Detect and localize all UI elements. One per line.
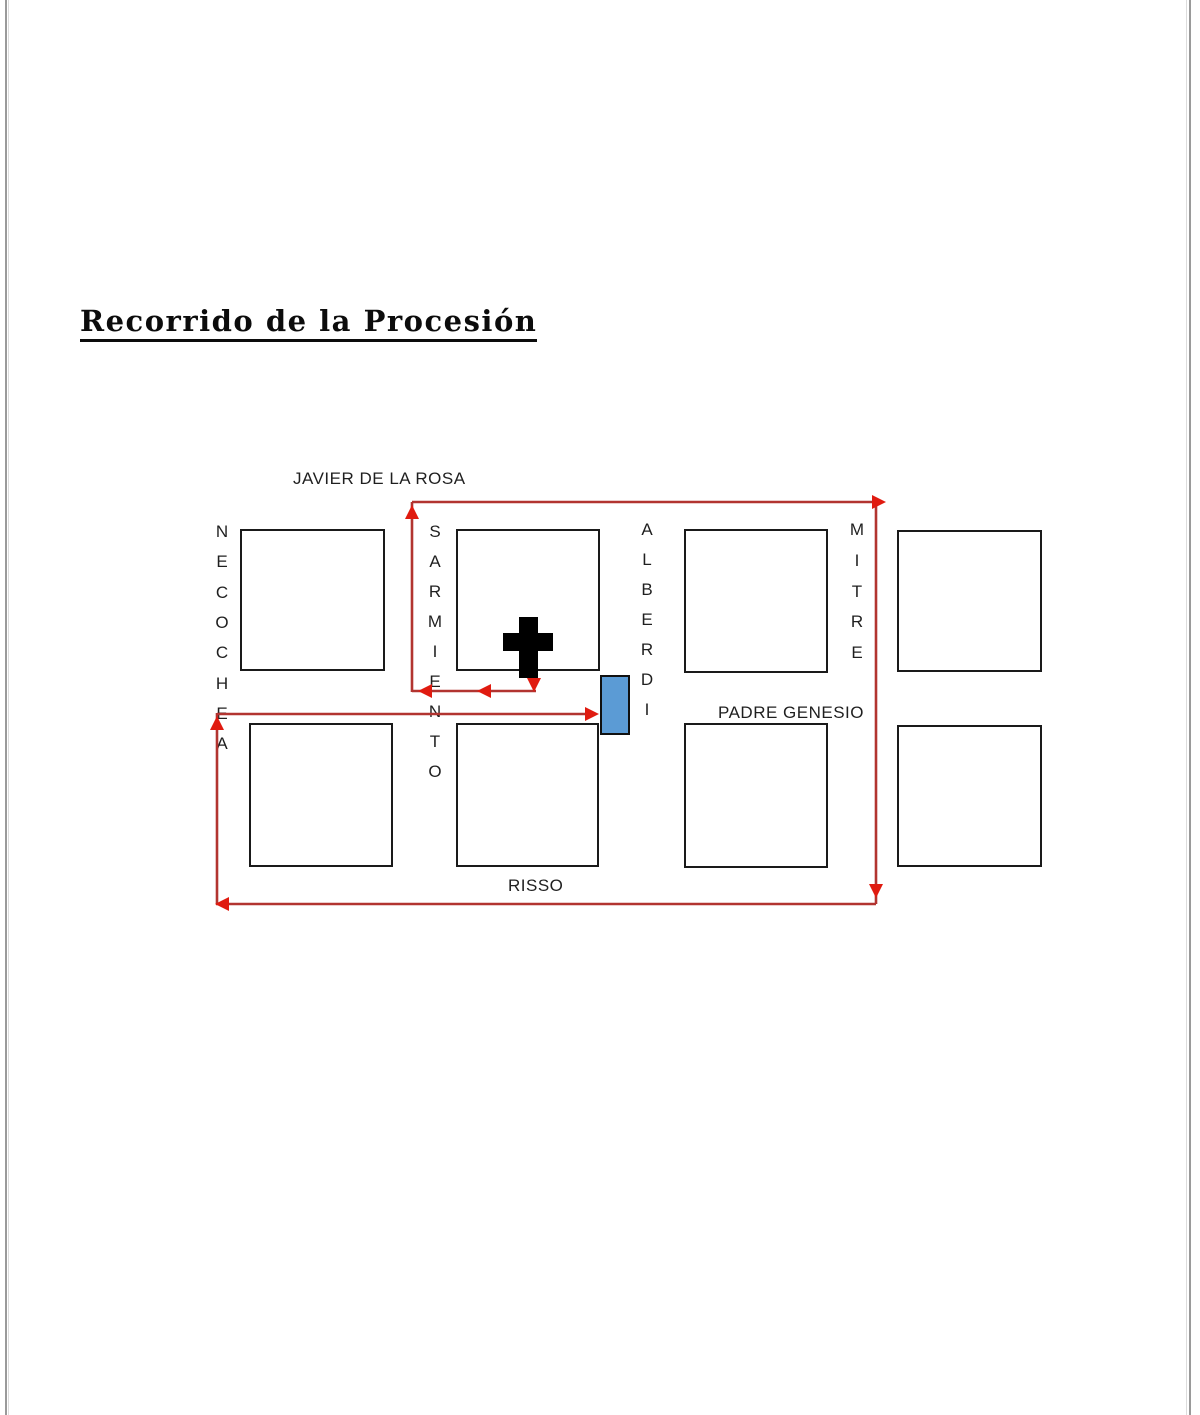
route-arrow-right [585, 707, 599, 721]
route-arrow-down [869, 884, 883, 898]
document-page: Recorrido de la Procesión JAVIER DE LA R… [0, 0, 1200, 1415]
route-arrow-up [405, 505, 419, 519]
route-arrow-right [872, 495, 886, 509]
route-arrow-left [418, 684, 432, 698]
church-cross-icon [503, 633, 553, 651]
route-arrow-left [477, 684, 491, 698]
route-arrow-up [210, 716, 224, 730]
chapel-marker [600, 675, 630, 735]
